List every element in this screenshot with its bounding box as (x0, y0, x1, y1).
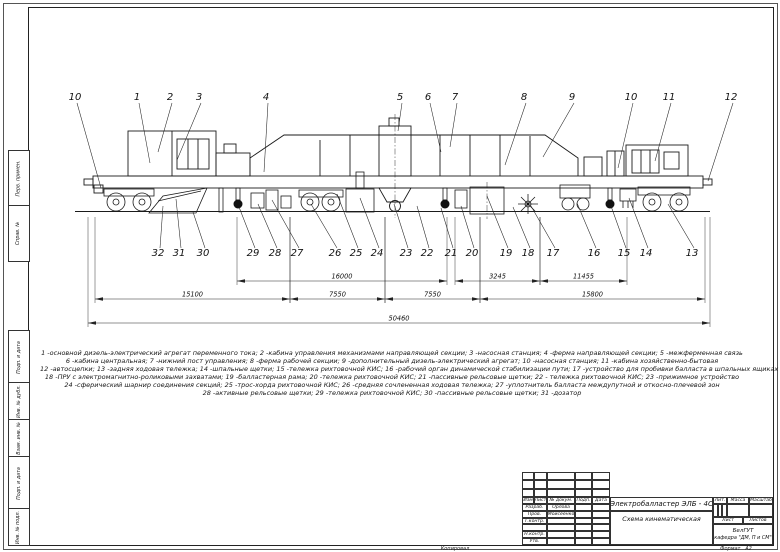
legend-line: 18 -ПРУ с электромагнитно-роликовыми зах… (40, 373, 744, 381)
callout-leader (337, 194, 358, 248)
dimension-arrow (282, 297, 290, 300)
tb-role-sign (575, 511, 592, 518)
tb-col-podp: Подп. (575, 497, 592, 504)
callout-number: 18 (522, 248, 535, 259)
frame-attr-label: Взам. инв. № (17, 422, 22, 455)
frame-attr-box: Подп. и дата (8, 330, 30, 384)
dimension-value: 16000 (332, 273, 353, 281)
dimension-arrow (619, 279, 627, 282)
callout-leader (450, 103, 457, 147)
callout-leader (160, 206, 163, 248)
dimension-layer: 1600032451145515100755075501580050460 (88, 217, 710, 327)
dimension-arrow (237, 279, 245, 282)
dimension-arrow (385, 297, 393, 300)
legend-line: 12 -автосцепки; 13 -задняя ходовая тележ… (40, 365, 744, 373)
revision-cell (522, 480, 534, 488)
tb-role-name (547, 531, 575, 538)
tb-role-sign (575, 524, 592, 531)
tb-role-date (592, 504, 610, 511)
callout-number: 4 (263, 92, 269, 103)
doc-subtitle: Схема кинематическая (610, 511, 713, 545)
tb-role-sign (575, 518, 592, 525)
callout-number: 19 (500, 248, 513, 259)
callout-leader (193, 212, 205, 248)
callout-number: 30 (197, 248, 210, 259)
dimension-arrow (95, 297, 103, 300)
tb-role-date (592, 531, 610, 538)
dimension-arrow (702, 321, 710, 324)
revision-cell (547, 489, 575, 497)
dimension-arrow (439, 279, 447, 282)
legend-line: 1 -основной дизель-электрический агрегат… (40, 349, 744, 357)
frame-attr-box: Справ. № (8, 205, 30, 262)
tb-mass-label: Масса (727, 497, 749, 504)
callout-leader (258, 204, 277, 248)
callout-leader (272, 200, 299, 248)
callout-number: 8 (521, 92, 527, 103)
tb-role-label: Утв. (522, 538, 547, 545)
callout-number: 10 (69, 92, 82, 103)
callout-number: 17 (547, 248, 560, 259)
frame-attr-box: Взам. инв. № (8, 419, 30, 458)
tb-sheet-label: Лист (713, 517, 743, 524)
callout-number: 22 (421, 248, 434, 259)
dimension-value: 11455 (573, 273, 594, 281)
callout-leader (708, 103, 733, 181)
callout-number: 1 (134, 92, 140, 103)
dimension-arrow (455, 279, 463, 282)
tb-role-name (547, 538, 575, 545)
revision-cell (522, 489, 534, 497)
dimension-arrow (480, 297, 488, 300)
org-name: БелГУТ (733, 528, 754, 535)
tb-role-sign (575, 538, 592, 545)
callout-leader (513, 207, 530, 248)
dimension-arrow (290, 297, 298, 300)
tb-role-label (522, 524, 547, 531)
format-word: Формат (720, 546, 740, 552)
callout-leader (176, 199, 181, 248)
frame-attr-label: Перв. примен. (17, 160, 22, 196)
tb-scale-cell (749, 504, 773, 517)
callout-number: 16 (588, 248, 601, 259)
dimension-arrow (88, 321, 96, 324)
tb-lit-label: Лит. (713, 497, 727, 504)
revision-cell (534, 489, 547, 497)
callout-number: 7 (452, 92, 459, 103)
callout-number: 28 (269, 248, 282, 259)
callout-leader (531, 206, 555, 248)
callout-number: 12 (725, 92, 738, 103)
callout-number: 24 (371, 248, 384, 259)
tb-role-name: Орлова (547, 504, 575, 511)
doc-title: Электробалластер ЭЛБ - 4С (610, 497, 713, 511)
callout-leader (543, 103, 574, 157)
callout-leader (577, 203, 596, 248)
dimension-value: 15800 (582, 291, 603, 299)
format-label: Формат А2 (700, 546, 772, 552)
frame-attr-box: Перв. примен. (8, 150, 30, 207)
frame-attr-label: Инв. № дубл. (17, 385, 22, 418)
callout-leader (177, 103, 201, 160)
callout-number: 14 (640, 248, 653, 259)
tb-role-date (592, 538, 610, 545)
callout-number: 23 (400, 248, 413, 259)
tb-role-label: Н.контр. (522, 531, 547, 538)
callout-number: 9 (569, 92, 575, 103)
callout-leader (430, 103, 441, 152)
frame-attr-label: Подп. и дата (17, 341, 22, 374)
callout-number: 3 (196, 92, 202, 103)
tb-scale-label: Масштаб (749, 497, 773, 504)
tb-role-date (592, 518, 610, 525)
revision-cell (575, 489, 592, 497)
callout-number: 10 (625, 92, 638, 103)
frame-attr-box: Инв. № подл. (8, 508, 30, 546)
tb-role-sign (575, 531, 592, 538)
tb-col-data: Дата (592, 497, 610, 504)
tb-col-izm: Изм (522, 497, 534, 504)
tb-role-name: Моисеенко (547, 511, 575, 518)
dimension-value: 7550 (329, 291, 346, 299)
callout-leader (394, 204, 408, 248)
callout-leader (629, 198, 648, 248)
tb-col-list: Лист (534, 497, 547, 504)
kopiroval-label: Копировал (380, 546, 530, 552)
legend-line: 24 -сферический шарнир соединения секций… (40, 381, 744, 389)
tb-col-doc: № докум. (547, 497, 575, 504)
frame-attr-box: Инв. № дубл. (8, 382, 30, 421)
callout-leader (139, 103, 150, 163)
callout-number: 26 (329, 248, 342, 259)
frame-attr-box: Подп. и дата (8, 456, 30, 510)
callout-leader (505, 103, 526, 165)
callout-leader (461, 206, 474, 248)
revision-cell (592, 472, 610, 480)
callout-leader (618, 103, 633, 168)
revision-cell (575, 472, 592, 480)
frame-attr-label: Инв. № подл. (17, 510, 22, 543)
callout-number: 13 (686, 248, 699, 259)
tb-role-label: Пров. (522, 511, 547, 518)
callout-number: 11 (663, 92, 676, 103)
tb-sheets-label: Листов (743, 517, 773, 524)
revision-cell (547, 472, 575, 480)
legend-line: 6 -кабина центральная; 7 -нижний пост уп… (40, 357, 744, 365)
dimension-value: 7550 (424, 291, 441, 299)
revision-cell (592, 489, 610, 497)
dimension-value: 3245 (489, 273, 506, 281)
frame-attr-label: Подп. и дата (17, 467, 22, 500)
callout-leader (398, 103, 402, 131)
dimension-value: 50460 (389, 315, 410, 323)
tb-organization: БелГУТ кафедра "ДМ, П и СМ" (713, 524, 773, 545)
revision-cell (534, 480, 547, 488)
callout-number: 2 (167, 92, 173, 103)
dimension-arrow (377, 297, 385, 300)
callout-leader (417, 206, 429, 248)
callout-number: 27 (291, 248, 304, 259)
tb-role-date (592, 524, 610, 531)
callout-leader (487, 196, 508, 248)
callout-number: 21 (445, 248, 458, 259)
callout-leader (239, 207, 255, 248)
dimension-arrow (532, 279, 540, 282)
tb-role-label: Т.контр. (522, 518, 547, 525)
callout-leader (158, 103, 172, 152)
callout-number: 20 (466, 248, 479, 259)
callout-leader (611, 206, 626, 248)
dimension-arrow (540, 279, 548, 282)
revision-cell (547, 480, 575, 488)
callout-number: 31 (173, 248, 186, 259)
revision-cell (534, 472, 547, 480)
legend-line: 28 -активные рельсовые щетки; 29 -тележк… (40, 389, 744, 397)
callout-number: 5 (397, 92, 403, 103)
tb-role-date (592, 511, 610, 518)
callout-leader (360, 198, 379, 248)
tb-role-sign (575, 504, 592, 511)
revision-cell (592, 480, 610, 488)
org-department: кафедра "ДМ, П и СМ" (714, 535, 771, 542)
dimension-arrow (697, 297, 705, 300)
tb-mass-cell (727, 504, 749, 517)
callout-leader (77, 103, 101, 188)
revision-cell (522, 472, 534, 480)
callout-number: 32 (152, 248, 165, 259)
callout-layer: 1012345678910111232313029282726252423222… (69, 92, 738, 259)
sheet: { "drawing": { "top_callouts": [ {"n":"1… (0, 0, 780, 552)
callout-number: 29 (247, 248, 260, 259)
tb-role-name (547, 524, 575, 531)
callout-number: 6 (425, 92, 431, 103)
callout-number: 15 (618, 248, 631, 259)
tb-role-label: Разраб. (522, 504, 547, 511)
machine-schematic-svg: 1012345678910111232313029282726252423222… (0, 0, 780, 552)
dimension-value: 15100 (182, 291, 203, 299)
callout-leader (264, 103, 268, 172)
frame-attr-label: Справ. № (17, 222, 22, 245)
machine-body (75, 114, 712, 218)
legend-text: 1 -основной дизель-электрический агрегат… (40, 349, 744, 397)
revision-cell (575, 480, 592, 488)
format-value: А2 (745, 546, 752, 552)
dimension-arrow (472, 297, 480, 300)
tb-role-name (547, 518, 575, 525)
callout-number: 25 (350, 248, 363, 259)
